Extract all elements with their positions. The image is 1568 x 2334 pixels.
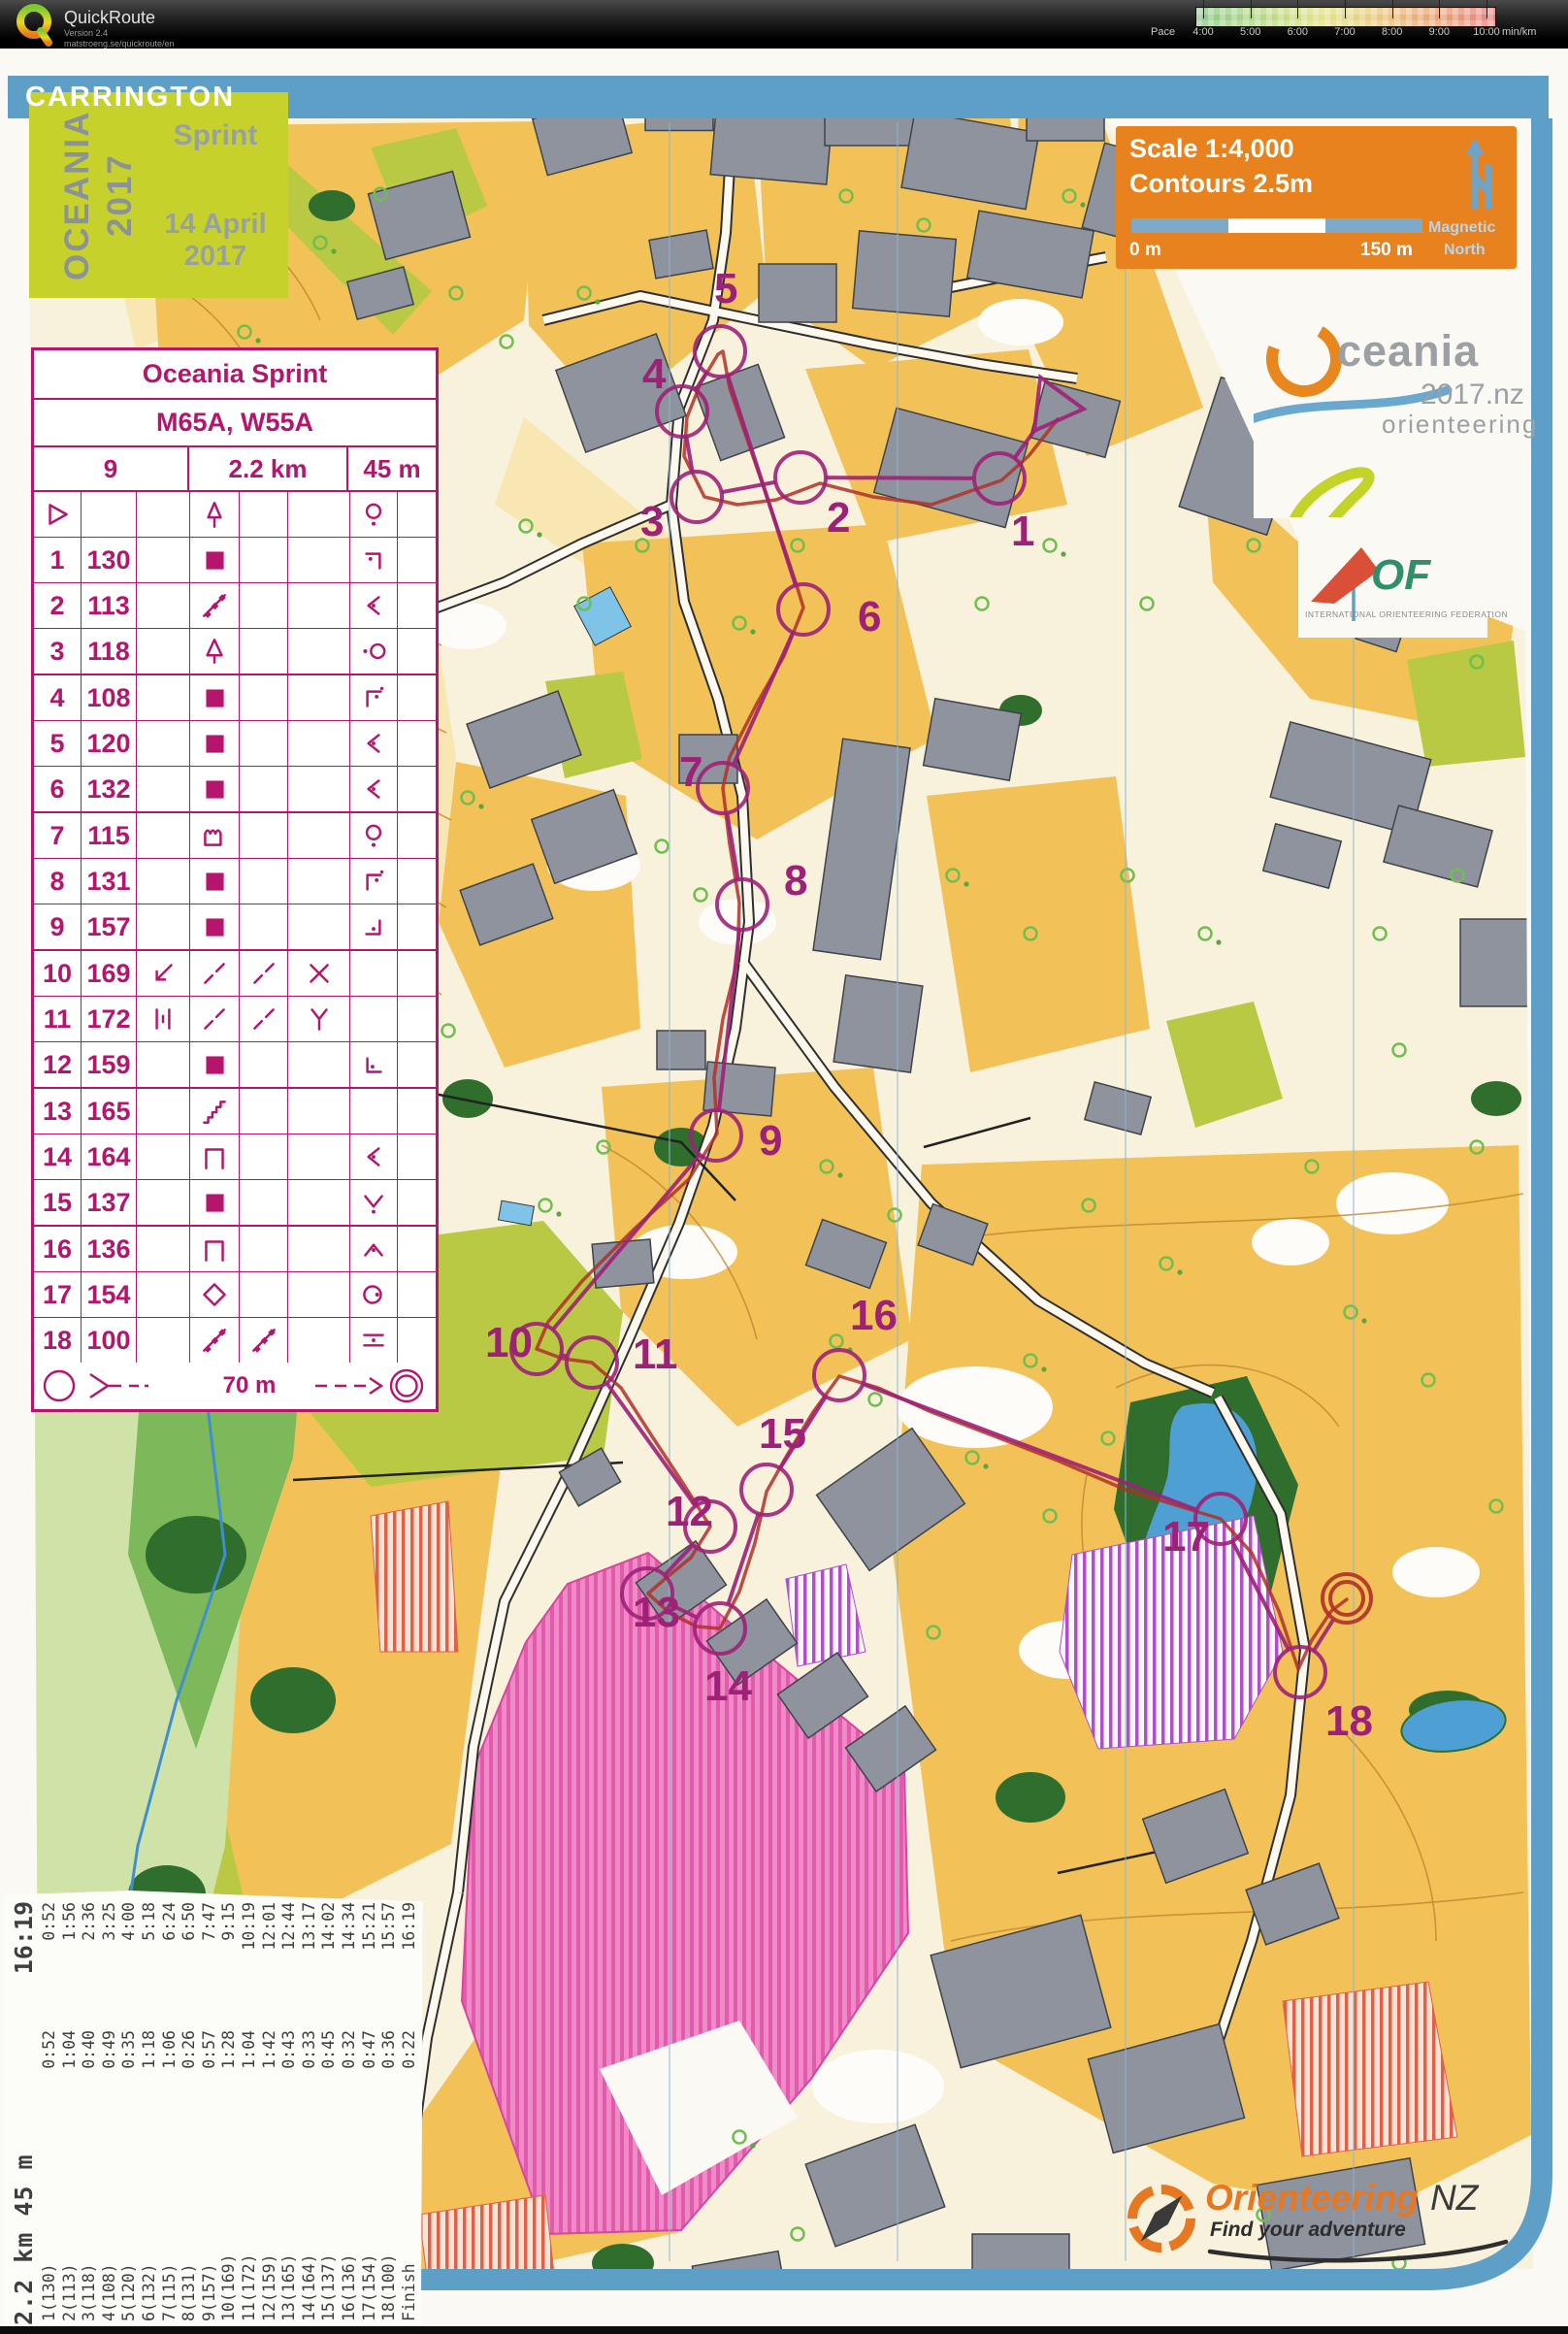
event-date: 14 April 2017 [144, 209, 287, 273]
corner-se-dot-symbol [358, 911, 389, 942]
between-bars-symbol [358, 1325, 389, 1356]
card-control-row: 8131 [34, 859, 436, 904]
pace-tick-label: 7:00 [1334, 26, 1355, 38]
pace-tick-label: 6:00 [1288, 26, 1308, 38]
pace-legend-bar [1195, 7, 1496, 27]
card-col-b: 136 [82, 1227, 137, 1271]
pace-tick-label: 8:00 [1382, 26, 1402, 38]
pace-tick-label: 9:00 [1429, 26, 1450, 38]
card-col-g [350, 492, 398, 537]
contours-text: Contours 2.5m [1129, 169, 1313, 199]
card-col-c [137, 859, 190, 904]
split-row: 8(131)0:266:50 [180, 1893, 200, 2329]
tower-symbol [199, 499, 230, 530]
split-row: 2(113)1:041:56 [60, 1893, 81, 2329]
card-col-d [190, 1272, 240, 1317]
card-col-c [137, 629, 190, 674]
split-row: 13(165)0:4312:44 [279, 1893, 300, 2329]
card-finish-row: 70 m [34, 1363, 436, 1409]
card-col-c [137, 675, 190, 720]
card-col-c [137, 904, 190, 949]
card-col-c [137, 813, 190, 858]
canopy-pi-symbol [199, 1233, 230, 1265]
pace-tick [1297, 0, 1298, 18]
app-version: Version 2.4 [64, 28, 108, 38]
card-col-h [398, 492, 436, 537]
north-arrow-icon [1457, 136, 1506, 214]
card-col-c [137, 1042, 190, 1087]
card-col-f [288, 583, 350, 628]
card-rows: 1130211331184108512061327115813191571016… [34, 492, 436, 1363]
control-number-14: 14 [704, 1662, 752, 1710]
card-col-b: 131 [82, 859, 137, 904]
event-side-year: 2017 [101, 100, 140, 290]
corner-ne-dot-symbol [358, 866, 389, 897]
card-col-d [190, 721, 240, 766]
tree-symbol [199, 636, 230, 667]
card-col-g [350, 1180, 398, 1225]
split-row: 5(120)0:354:00 [119, 1893, 140, 2329]
fence-symbol [199, 1325, 230, 1356]
circle-dot-s-symbol [358, 499, 389, 530]
corner-ne-dot-symbol [358, 682, 389, 713]
card-col-a: 8 [34, 859, 82, 904]
funnel-icons [40, 1366, 185, 1405]
card-col-f [288, 1134, 350, 1179]
card-col-b: 154 [82, 1272, 137, 1317]
iof-letters: OF [1371, 551, 1430, 600]
card-col-f [288, 675, 350, 720]
card-col-a: 3 [34, 629, 82, 674]
split-row: 16(136)0:3214:34 [340, 1893, 360, 2329]
card-col-h [398, 1089, 436, 1134]
card-col-h [398, 629, 436, 674]
building [924, 699, 1022, 781]
card-col-e [240, 675, 288, 720]
app-url[interactable]: matstroeng.se/quickroute/en [64, 39, 175, 49]
pace-legend-label: Pace [1151, 26, 1175, 38]
card-col-d [190, 813, 240, 858]
split-row: 17(154)0:4715:21 [360, 1893, 380, 2329]
card-col-f [288, 859, 350, 904]
bracket-dot-symbol [358, 1096, 389, 1127]
card-col-e [240, 1089, 288, 1134]
card-climb: 45 m [348, 447, 436, 490]
circle-dot-s-symbol [358, 820, 389, 851]
card-col-a: 10 [34, 951, 82, 996]
card-col-h [398, 1134, 436, 1179]
card-classes: M65A, W55A [34, 400, 436, 447]
card-col-d [190, 1227, 240, 1271]
card-info-row: 9 2.2 km 45 m [34, 447, 436, 492]
pace-tick [1486, 0, 1487, 18]
card-col-c [137, 492, 190, 537]
scale-max: 150 m [1360, 240, 1413, 261]
card-control-row: 2113 [34, 583, 436, 629]
stairs-symbol [199, 1096, 230, 1127]
card-col-c [137, 951, 190, 996]
card-col-e [240, 583, 288, 628]
card-col-b [82, 492, 137, 537]
control-number-15: 15 [759, 1410, 806, 1458]
card-col-e [240, 629, 288, 674]
card-title: Oceania Sprint [34, 350, 436, 400]
corner-nw-dot-symbol [358, 544, 389, 575]
card-col-d [190, 1089, 240, 1134]
oceania-logo: ceania 2017.nz orienteering [1254, 309, 1566, 517]
card-col-f [288, 951, 350, 996]
scale-bar [1131, 218, 1422, 233]
course-leg [826, 477, 974, 478]
map-title: CARRINGTON [25, 82, 235, 114]
card-col-g [350, 1227, 398, 1271]
scale-zero: 0 m [1129, 240, 1161, 261]
split-row: 12(159)1:4212:01 [260, 1893, 280, 2329]
card-col-d [190, 1180, 240, 1225]
iof-caption: INTERNATIONAL ORIENTEERING FEDERATION [1305, 609, 1508, 619]
card-col-g [350, 675, 398, 720]
card-col-f [288, 1318, 350, 1363]
card-col-b: 118 [82, 629, 137, 674]
scale-box: Scale 1:4,000 Contours 2.5m 0 m 150 m Ma… [1116, 126, 1517, 269]
funnel-distance: 70 m [185, 1372, 313, 1399]
card-col-g [350, 1089, 398, 1134]
card-col-d [190, 951, 240, 996]
building-symbol [199, 1187, 230, 1218]
card-col-b: 164 [82, 1134, 137, 1179]
pace-tick-label: 10:00 [1473, 26, 1500, 38]
card-col-b: 157 [82, 904, 137, 949]
card-col-a: 9 [34, 904, 82, 949]
card-col-b: 130 [82, 538, 137, 582]
card-col-d [190, 904, 240, 949]
split-row: 9(157)0:577:47 [200, 1893, 220, 2329]
card-col-f [288, 1042, 350, 1087]
card-col-g [350, 859, 398, 904]
card-col-e [240, 1180, 288, 1225]
angle-w-dot-symbol [358, 728, 389, 759]
card-col-e [240, 904, 288, 949]
slash-symbol [248, 958, 279, 989]
card-col-h [398, 904, 436, 949]
card-col-f [288, 492, 350, 537]
card-col-a: 7 [34, 813, 82, 858]
split-row: 11(172)1:0410:19 [240, 1893, 260, 2329]
dot-circle-symbol [358, 636, 389, 667]
card-control-row: 11172 [34, 997, 436, 1042]
card-control-row: 5120 [34, 721, 436, 767]
card-col-c [137, 767, 190, 811]
card-control-row: 13165 [34, 1089, 436, 1134]
card-control-row: 4108 [34, 675, 436, 721]
card-control-row: 6132 [34, 767, 436, 813]
control-number-4: 4 [642, 350, 667, 398]
control-number-7: 7 [679, 748, 702, 796]
bottom-edge [0, 2326, 1568, 2334]
onz-word: Orienteering [1205, 2178, 1419, 2219]
card-col-f [288, 1180, 350, 1225]
iof-sail-icon [1311, 547, 1379, 604]
quickroute-logo-icon [14, 3, 56, 48]
building-symbol [199, 1049, 230, 1080]
angle-s-dot-symbol [358, 1187, 389, 1218]
junction-y-symbol [304, 1003, 335, 1035]
event-box: OCEANIA 2017 Sprint 14 April 2017 [29, 92, 288, 298]
card-col-d [190, 859, 240, 904]
card-col-e [240, 767, 288, 811]
card-col-f [288, 538, 350, 582]
control-number-16: 16 [850, 1292, 898, 1339]
orienteering-nz-logo: Orienteering NZ Find your adventure [1118, 2172, 1535, 2274]
north-label: North [1444, 242, 1486, 259]
building-symbol [199, 728, 230, 759]
card-col-c [137, 1180, 190, 1225]
card-col-b: 137 [82, 1180, 137, 1225]
card-col-a: 5 [34, 721, 82, 766]
card-col-f [288, 629, 350, 674]
control-number-3: 3 [640, 498, 664, 545]
card-control-row: 10169 [34, 951, 436, 997]
card-col-d [190, 1134, 240, 1179]
card-control-row: 18100 [34, 1318, 436, 1363]
card-col-g [350, 538, 398, 582]
card-col-g [350, 1318, 398, 1363]
card-control-row: 12159 [34, 1042, 436, 1089]
split-row: 10(169)1:289:15 [219, 1893, 240, 2329]
card-col-g [350, 583, 398, 628]
card-col-b: 132 [82, 767, 137, 811]
card-col-e [240, 1134, 288, 1179]
card-col-h [398, 721, 436, 766]
scale-text: Scale 1:4,000 [1129, 134, 1294, 164]
card-col-e [240, 859, 288, 904]
app-title: QuickRoute [64, 8, 155, 28]
card-col-h [398, 767, 436, 811]
splits-header: 2.2 km 45 m 16:19 [7, 1893, 40, 2329]
control-number-17: 17 [1162, 1513, 1210, 1561]
split-row: Finish0:2216:19 [400, 1893, 420, 2329]
control-number-5: 5 [714, 265, 737, 312]
split-row: 4(108)0:493:25 [100, 1893, 120, 2329]
card-col-a: 12 [34, 1042, 82, 1087]
card-col-h [398, 1227, 436, 1271]
building-symbol [199, 544, 230, 575]
pace-tick [1439, 0, 1440, 18]
card-col-h [398, 1318, 436, 1363]
card-col-f [288, 767, 350, 811]
fence-symbol [199, 590, 230, 621]
card-col-a: 15 [34, 1180, 82, 1225]
card-col-g [350, 1272, 398, 1317]
oceania-o-icon [1260, 315, 1348, 403]
iof-logo: OF INTERNATIONAL ORIENTEERING FEDERATION [1305, 543, 1485, 636]
angle-w-dot-symbol [358, 1141, 389, 1172]
building [1460, 919, 1528, 1006]
pace-tick [1345, 0, 1346, 18]
card-col-h [398, 538, 436, 582]
card-col-c [137, 1318, 190, 1363]
card-col-d [190, 767, 240, 811]
card-col-h [398, 951, 436, 996]
card-col-a: 4 [34, 675, 82, 720]
event-side-text: OCEANIA [58, 100, 97, 290]
diamond-symbol [199, 1279, 230, 1310]
card-col-f [288, 721, 350, 766]
arrow-sw-symbol [147, 958, 179, 989]
card-col-a: 13 [34, 1089, 82, 1134]
fence-symbol [248, 1325, 279, 1356]
canopy-symbol [199, 820, 230, 851]
magnetic-label: Magnetic [1428, 219, 1495, 237]
card-col-c [137, 1272, 190, 1317]
card-col-h [398, 1042, 436, 1087]
card-col-f [288, 1227, 350, 1271]
event-name: Sprint [144, 119, 287, 152]
control-number-1: 1 [1011, 508, 1034, 555]
card-col-e [240, 1318, 288, 1363]
card-control-row: 16136 [34, 1227, 436, 1272]
building-symbol [199, 773, 230, 805]
card-col-g [350, 629, 398, 674]
card-col-h [398, 583, 436, 628]
building [833, 975, 923, 1072]
slash-symbol [199, 1003, 230, 1035]
card-col-d [190, 538, 240, 582]
card-col-h [398, 675, 436, 720]
pace-tick [1251, 0, 1252, 18]
card-col-d [190, 1042, 240, 1087]
card-col-c [137, 1227, 190, 1271]
card-control-row: 1130 [34, 538, 436, 583]
card-col-c [137, 997, 190, 1041]
card-col-c [137, 721, 190, 766]
card-col-g [350, 767, 398, 811]
control-number-12: 12 [666, 1488, 713, 1535]
card-col-c [137, 538, 190, 582]
control-number-10: 10 [485, 1319, 533, 1366]
card-control-row: 17154 [34, 1272, 436, 1318]
pace-legend-unit: min/km [1502, 26, 1536, 38]
oceania-year: 2017.nz [1421, 378, 1524, 411]
card-col-a [34, 492, 82, 537]
card-col-b: 165 [82, 1089, 137, 1134]
card-col-h [398, 1272, 436, 1317]
split-row: 3(118)0:402:36 [80, 1893, 100, 2329]
card-col-d [190, 1318, 240, 1363]
oceania-wordmark: ceania [1337, 326, 1479, 377]
split-row: 15(137)0:4514:02 [319, 1893, 340, 2329]
card-col-f [288, 997, 350, 1041]
card-col-h [398, 997, 436, 1041]
card-col-a: 16 [34, 1227, 82, 1271]
card-control-row: 3118 [34, 629, 436, 675]
card-col-d [190, 997, 240, 1041]
splits-total-time: 16:19 [10, 1893, 38, 2036]
building [657, 1031, 705, 1069]
between-symbol [147, 1003, 179, 1035]
app-titlebar[interactable]: QuickRoute Version 2.4 matstroeng.se/qui… [0, 0, 1568, 49]
corner-sw-dot-symbol [358, 1049, 389, 1080]
card-col-a: 17 [34, 1272, 82, 1317]
card-col-h [398, 1180, 436, 1225]
oceania-sub: orienteering [1382, 410, 1538, 440]
card-col-e [240, 492, 288, 537]
building-symbol [199, 911, 230, 942]
splits-course-summary: 2.2 km 45 m [10, 2036, 38, 2329]
onz-nz: NZ [1430, 2178, 1478, 2219]
card-col-g [350, 1042, 398, 1087]
card-col-d [190, 675, 240, 720]
card-col-e [240, 1227, 288, 1271]
onz-tagline: Find your adventure [1210, 2219, 1406, 2242]
circle-dot-e-symbol [358, 1279, 389, 1310]
card-col-c [137, 1134, 190, 1179]
card-col-g [350, 904, 398, 949]
card-col-b: 100 [82, 1318, 137, 1363]
building [759, 264, 836, 322]
control-number-6: 6 [858, 593, 881, 641]
card-col-e [240, 813, 288, 858]
pace-tick-label: 5:00 [1240, 26, 1260, 38]
splits-strip: 2.2 km 45 m 16:19 1(130)0:520:522(113)1:… [4, 1890, 423, 2334]
card-col-b: 169 [82, 951, 137, 996]
split-row: 18(100)0:3615:57 [379, 1893, 400, 2329]
pace-tick [1392, 0, 1393, 18]
building [853, 231, 957, 316]
card-col-g [350, 951, 398, 996]
card-col-c [137, 583, 190, 628]
split-row: 14(164)0:3313:17 [300, 1893, 320, 2329]
finish-icons [313, 1366, 430, 1405]
control-number-2: 2 [827, 494, 850, 542]
control-number-9: 9 [759, 1117, 782, 1165]
quickroute-window: 123456789101112131415161718 CARRINGTON O… [0, 0, 1568, 2334]
angle-n-dot-symbol [358, 1233, 389, 1265]
building-symbol [199, 866, 230, 897]
card-col-c [137, 1089, 190, 1134]
card-col-a: 2 [34, 583, 82, 628]
canopy-pi-symbol [199, 1141, 230, 1172]
card-col-f [288, 904, 350, 949]
card-col-b: 108 [82, 675, 137, 720]
card-col-a: 11 [34, 997, 82, 1041]
card-col-f [288, 813, 350, 858]
card-col-d [190, 583, 240, 628]
control-number-13: 13 [633, 1589, 680, 1636]
card-col-e [240, 1272, 288, 1317]
card-col-e [240, 721, 288, 766]
cross-x-symbol [304, 958, 335, 989]
card-col-a: 6 [34, 767, 82, 811]
card-control-row: 14164 [34, 1134, 436, 1180]
card-col-b: 172 [82, 997, 137, 1041]
card-col-a: 1 [34, 538, 82, 582]
split-row: 7(115)1:066:24 [160, 1893, 180, 2329]
angle-w-dot-symbol [358, 590, 389, 621]
card-col-g [350, 1134, 398, 1179]
card-col-b: 113 [82, 583, 137, 628]
card-col-b: 159 [82, 1042, 137, 1087]
card-col-b: 120 [82, 721, 137, 766]
card-control-row: 9157 [34, 904, 436, 951]
card-col-d [190, 492, 240, 537]
card-control-row: 7115 [34, 813, 436, 859]
building-symbol [199, 682, 230, 713]
card-start-row [34, 492, 436, 538]
card-col-a: 14 [34, 1134, 82, 1179]
control-description-card: Oceania Sprint M65A, W55A 9 2.2 km 45 m … [31, 347, 439, 1412]
split-row: 1(130)0:520:52 [40, 1893, 60, 2329]
